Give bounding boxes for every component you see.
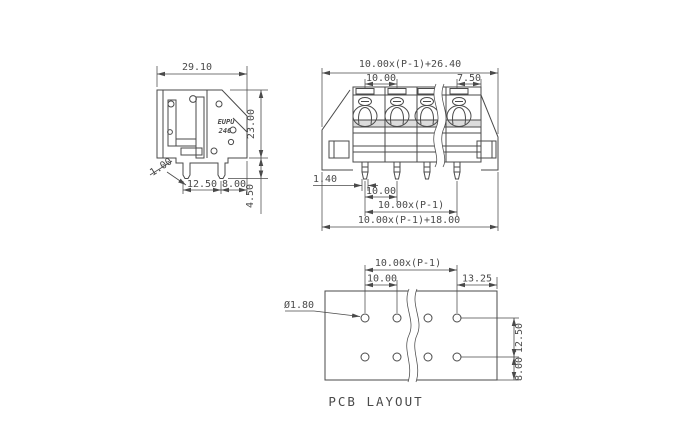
front-flanges: [322, 90, 498, 170]
side-view: EUPU 246 29.10 23.00 4.50 12.50 8.00 1.0…: [148, 62, 268, 214]
model-text: 246: [218, 127, 232, 135]
brand-text: EUPU: [218, 118, 236, 126]
front-view: 10.00x(P-1)+26.40 10.00 7.50 1.40 10.00 …: [313, 59, 498, 231]
dim-pcb-bottom-margin: 8.00: [514, 357, 525, 381]
pcb-layout-title: PCB LAYOUT: [328, 394, 423, 409]
dim-front-pitch-bottom: 10.00: [366, 186, 396, 197]
dim-pcb-row-spacing: 12.50: [514, 323, 525, 353]
dim-side-row-spacing: 12.50: [187, 179, 217, 190]
dim-front-pitch-top: 10.00: [366, 73, 396, 84]
dim-front-pin-width: 1.40: [313, 174, 337, 185]
dim-pcb-pitch: 10.00: [367, 274, 397, 285]
dim-front-overall-bottom: 10.00x(P-1)+18.00: [358, 215, 460, 226]
dim-side-edge-margin: 8.00: [222, 179, 246, 190]
dim-side-width: 29.10: [182, 62, 212, 73]
dim-pcb-hole-diameter: Ø1.80: [284, 299, 314, 311]
pcb-view: 10.00x(P-1) 10.00 13.25 Ø1.80 12.50 8.00…: [284, 258, 525, 409]
dim-front-end-margin: 7.50: [457, 73, 481, 84]
dim-pcb-right-margin: 13.25: [462, 274, 492, 285]
drawing-svg: EUPU 246 29.10 23.00 4.50 12.50 8.00 1.0…: [0, 0, 680, 440]
technical-drawing-canvas: EUPU 246 29.10 23.00 4.50 12.50 8.00 1.0…: [0, 0, 680, 440]
dim-front-span: 10.00x(P-1): [378, 200, 444, 211]
dim-front-overall-top: 10.00x(P-1)+26.40: [359, 59, 461, 70]
dim-pcb-span: 10.00x(P-1): [375, 258, 441, 269]
front-pins: [362, 162, 460, 179]
dim-side-height: 23.00: [246, 109, 257, 139]
